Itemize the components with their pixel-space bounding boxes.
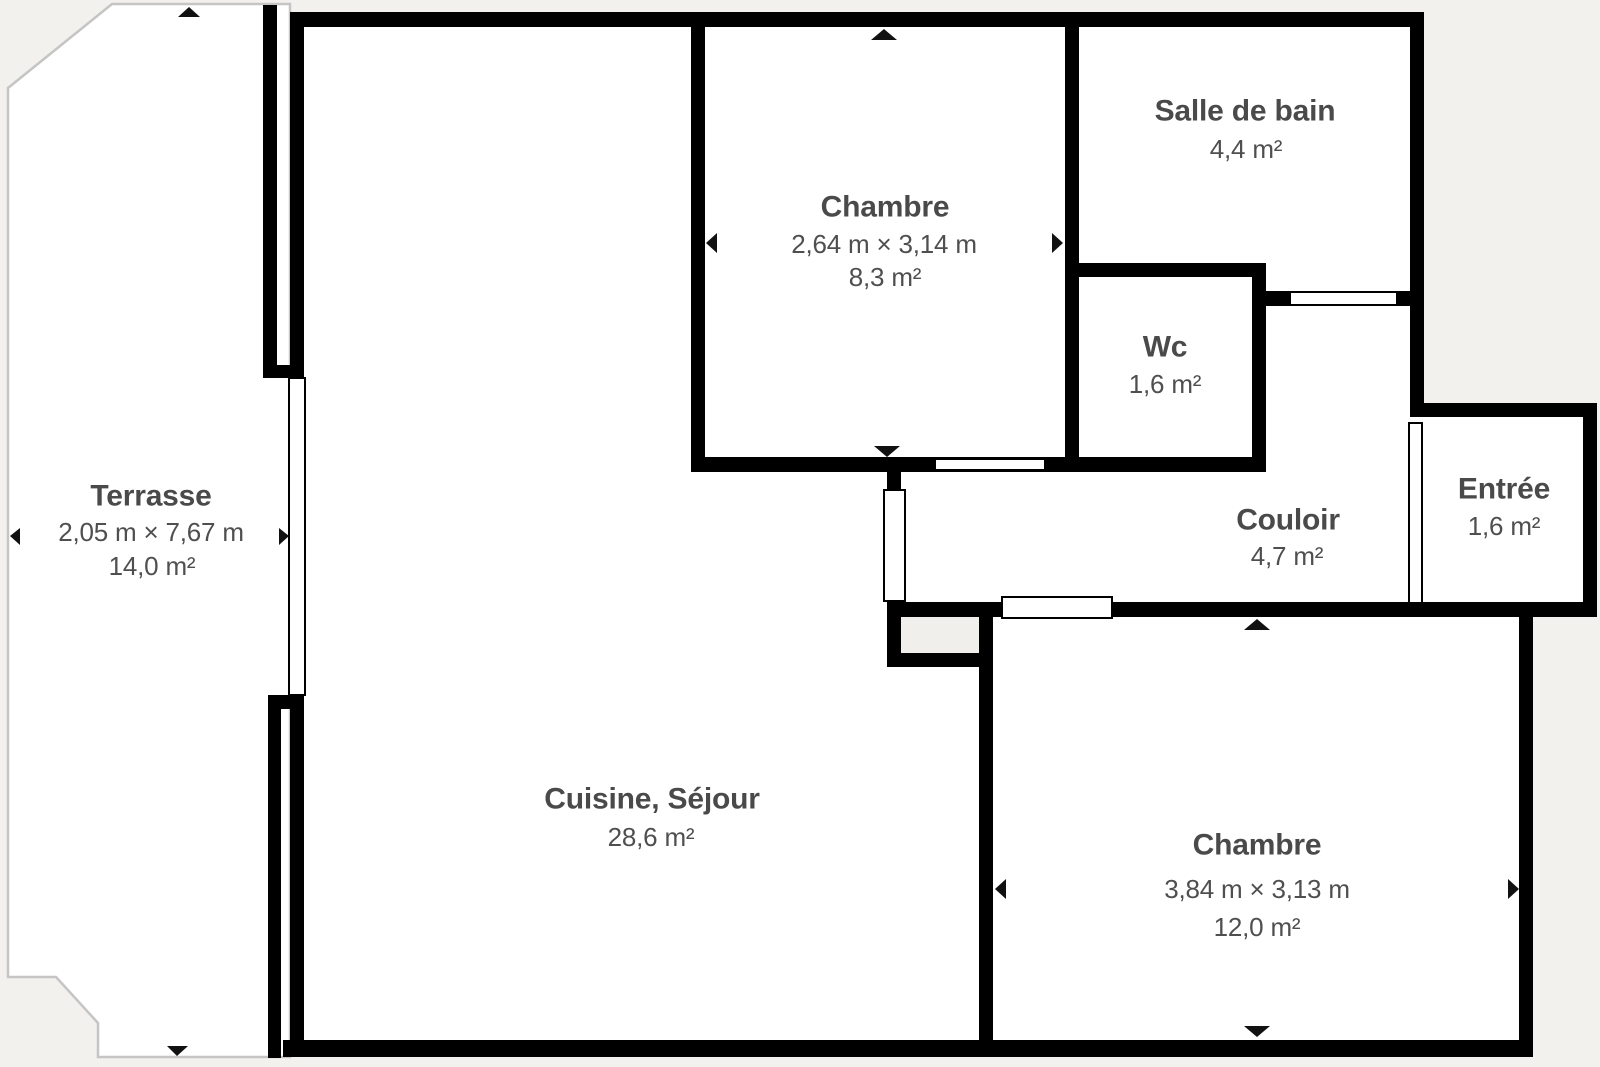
wall-terrasse-upper xyxy=(263,5,277,367)
room-label-salle-de-bain: Salle de bain xyxy=(1155,95,1336,128)
window-chambre-top xyxy=(935,459,1045,470)
room-label-wc: Wc xyxy=(1143,331,1188,364)
wall-entree-top xyxy=(1410,403,1597,417)
door-entree xyxy=(1409,423,1422,603)
room-label-couloir: Couloir xyxy=(1236,504,1340,537)
wall-chambre-top-left xyxy=(691,12,705,472)
room-label-chambre-bottom: Chambre xyxy=(1193,829,1322,862)
building-interior xyxy=(297,19,1590,1048)
wall-right-lower xyxy=(1519,602,1533,1057)
room-dimensions-terrasse: 2,05 m × 7,67 m xyxy=(58,517,244,547)
room-area-label-entree: 1,6 m² xyxy=(1468,511,1541,541)
room-dimensions-chambre-top: 2,64 m × 3,14 m xyxy=(791,229,977,259)
room-area-label-chambre-bottom: 12,0 m² xyxy=(1214,912,1301,942)
wall-entree-right xyxy=(1583,403,1597,617)
wall-top xyxy=(290,12,1424,27)
wall-bottom xyxy=(283,1040,1533,1057)
room-area-label-terrasse: 14,0 m² xyxy=(109,551,196,581)
wall-terrasse-lower xyxy=(268,695,281,1058)
room-area-label-salle-de-bain: 4,4 m² xyxy=(1210,134,1283,164)
wall-chambre-top-right xyxy=(1065,26,1079,472)
room-label-cuisine-sejour: Cuisine, Séjour xyxy=(544,783,760,816)
room-label-terrasse: Terrasse xyxy=(90,480,211,513)
wall-wc-top xyxy=(1065,263,1266,277)
room-area-label-couloir: 4,7 m² xyxy=(1251,541,1324,571)
door-cuisine-couloir xyxy=(884,490,905,601)
room-area-label-cuisine-sejour: 28,6 m² xyxy=(608,822,695,852)
wall-couloir-bottom xyxy=(887,602,1597,617)
room-label-chambre-top: Chambre xyxy=(821,191,950,224)
wall-shaft-bottom xyxy=(887,653,993,667)
wall-terrasse-lower-foot xyxy=(268,695,303,709)
room-area-label-wc: 1,6 m² xyxy=(1129,369,1202,399)
window-terrasse xyxy=(289,378,305,695)
room-dimensions-chambre-bottom: 3,84 m × 3,13 m xyxy=(1164,874,1350,904)
room-label-entree: Entrée xyxy=(1458,473,1550,506)
floor-plan-svg: Terrasse 2,05 m × 7,67 m 14,0 m² Chambre… xyxy=(0,0,1600,1067)
shaft-area xyxy=(901,615,979,653)
wall-terrasse-upper-foot xyxy=(263,365,303,378)
wall-divider-cuisine-chambre xyxy=(979,602,993,1057)
room-area-label-chambre-top: 8,3 m² xyxy=(849,262,922,292)
door-chambre-bottom xyxy=(1002,597,1112,618)
door-salle-de-bain xyxy=(1290,292,1397,305)
wall-right-upper xyxy=(1410,12,1424,417)
floor-plan: Terrasse 2,05 m × 7,67 m 14,0 m² Chambre… xyxy=(0,0,1600,1067)
